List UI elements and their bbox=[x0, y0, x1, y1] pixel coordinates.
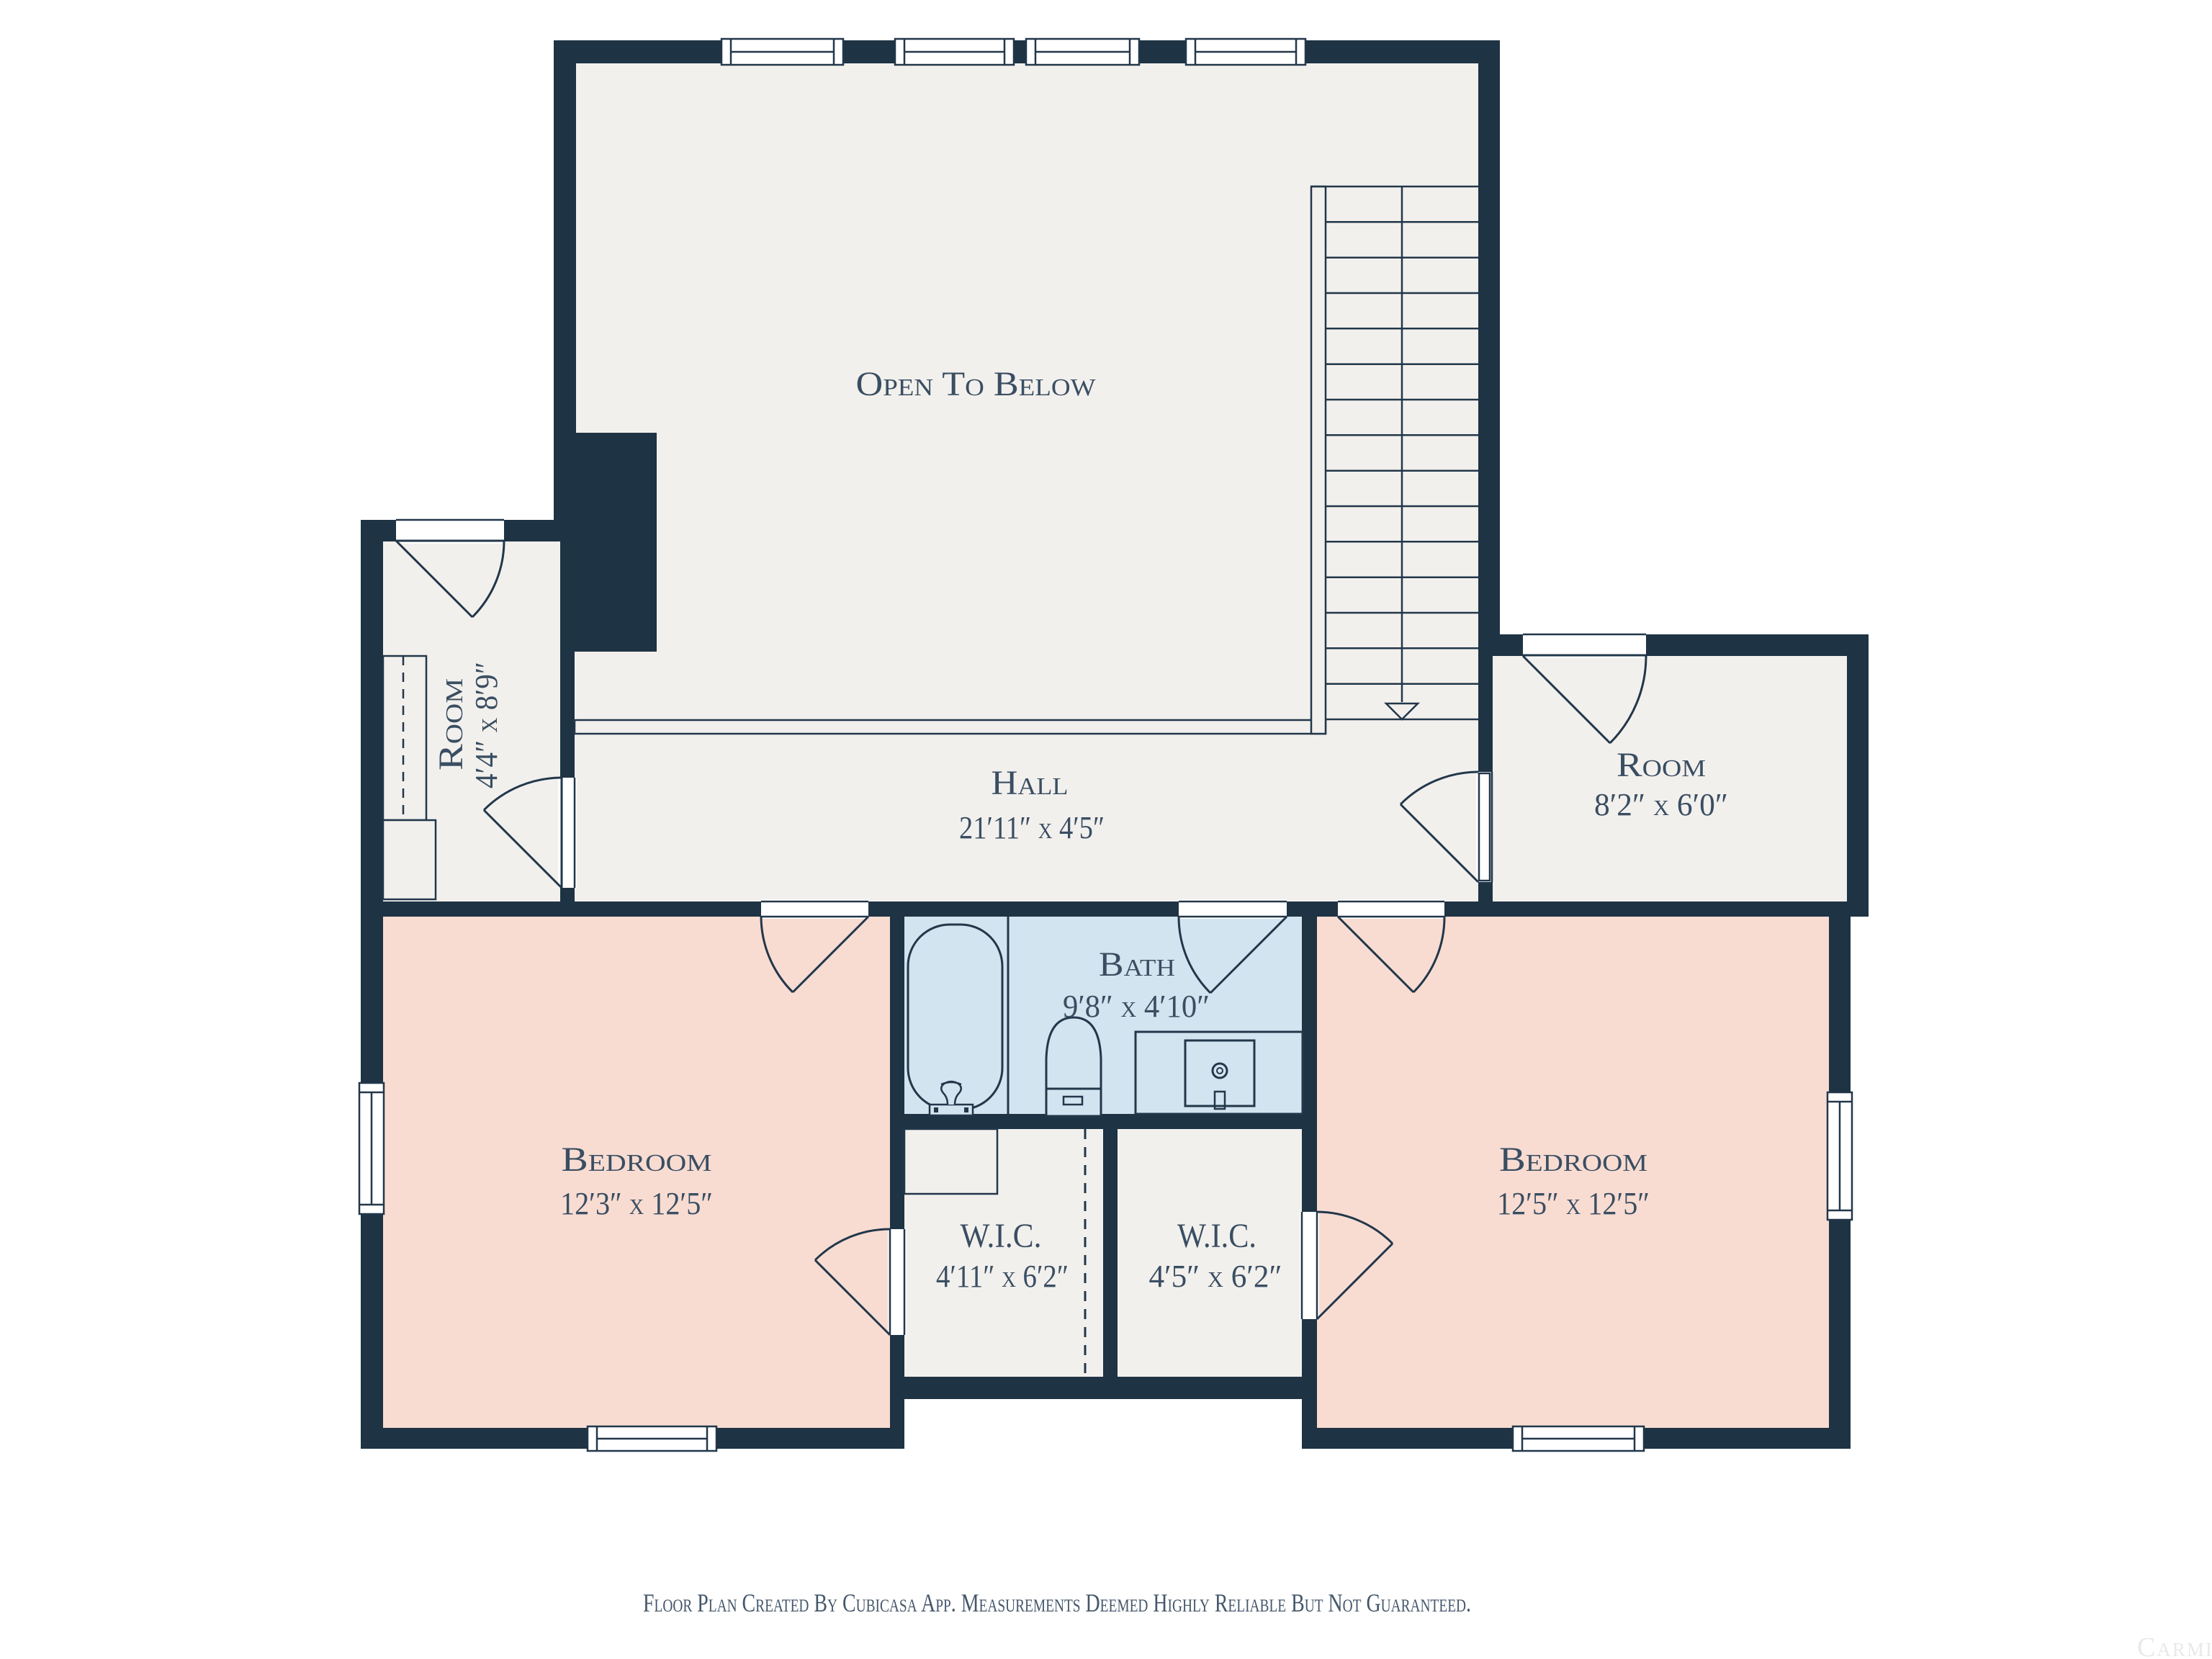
svg-text:8′2″ x 6′0″: 8′2″ x 6′0″ bbox=[1594, 787, 1728, 822]
svg-text:12′3″ x 12′5″: 12′3″ x 12′5″ bbox=[560, 1186, 713, 1221]
svg-text:W.I.C.: W.I.C. bbox=[961, 1217, 1042, 1255]
svg-text:4′4″ x 8′9″: 4′4″ x 8′9″ bbox=[469, 662, 504, 788]
svg-text:9′8″ x 4′10″: 9′8″ x 4′10″ bbox=[1063, 989, 1210, 1024]
svg-text:4′11″ x 6′2″: 4′11″ x 6′2″ bbox=[936, 1259, 1069, 1294]
svg-text:12′5″ x 12′5″: 12′5″ x 12′5″ bbox=[1497, 1186, 1650, 1221]
svg-text:4′5″ x 6′2″: 4′5″ x 6′2″ bbox=[1149, 1259, 1282, 1294]
svg-text:Open To Below: Open To Below bbox=[856, 365, 1097, 403]
svg-text:Room: Room bbox=[1617, 746, 1706, 784]
svg-text:Bedroom: Bedroom bbox=[1499, 1141, 1647, 1179]
svg-text:Hall: Hall bbox=[992, 764, 1069, 802]
svg-text:Carmile, Inc: Carmile, Inc bbox=[2137, 1632, 2212, 1659]
svg-text:21′11″ x 4′5″: 21′11″ x 4′5″ bbox=[959, 810, 1105, 845]
svg-text:Bath: Bath bbox=[1099, 945, 1175, 984]
svg-text:Room: Room bbox=[432, 678, 470, 770]
svg-text:Bedroom: Bedroom bbox=[562, 1141, 712, 1179]
svg-text:W.I.C.: W.I.C. bbox=[1177, 1217, 1256, 1255]
svg-text:Floor Plan Created By Cubicasa: Floor Plan Created By Cubicasa App. Meas… bbox=[643, 1588, 1471, 1617]
